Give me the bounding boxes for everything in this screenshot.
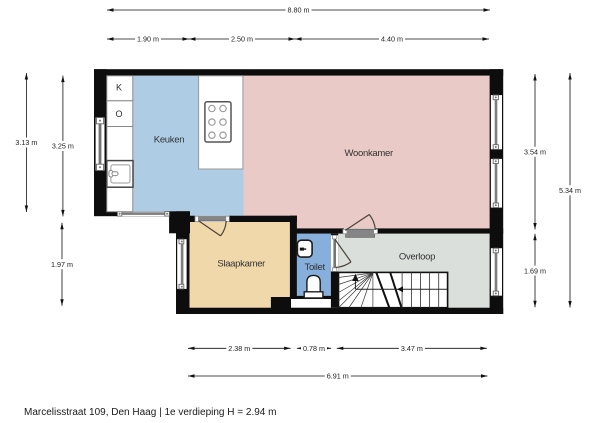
svg-text:0.78 m: 0.78 m [303,344,325,353]
svg-text:Marcelisstraat 109, Den Haag |: Marcelisstraat 109, Den Haag | 1e verdie… [24,407,276,418]
svg-text:Slaapkamer: Slaapkamer [217,258,265,269]
svg-text:8.80 m: 8.80 m [288,6,310,15]
svg-text:3.13 m: 3.13 m [15,138,37,147]
svg-text:Overloop: Overloop [399,252,435,263]
svg-text:Toilet: Toilet [305,262,326,273]
svg-text:3.25 m: 3.25 m [52,142,74,151]
svg-text:Keuken: Keuken [154,135,184,146]
svg-text:K: K [116,83,122,93]
svg-text:1.97 m: 1.97 m [51,260,73,269]
svg-text:2.50 m: 2.50 m [231,35,253,44]
svg-text:2.38 m: 2.38 m [228,344,250,353]
svg-text:O: O [115,109,122,119]
svg-text:3.47 m: 3.47 m [401,344,423,353]
svg-text:1.90 m: 1.90 m [137,35,159,44]
svg-text:1.69 m: 1.69 m [524,266,546,275]
svg-text:5.34 m: 5.34 m [559,186,581,195]
svg-text:3.54 m: 3.54 m [524,147,546,156]
svg-text:Woonkamer: Woonkamer [345,148,393,159]
svg-text:4.40 m: 4.40 m [381,35,403,44]
svg-text:6.91 m: 6.91 m [327,372,349,381]
